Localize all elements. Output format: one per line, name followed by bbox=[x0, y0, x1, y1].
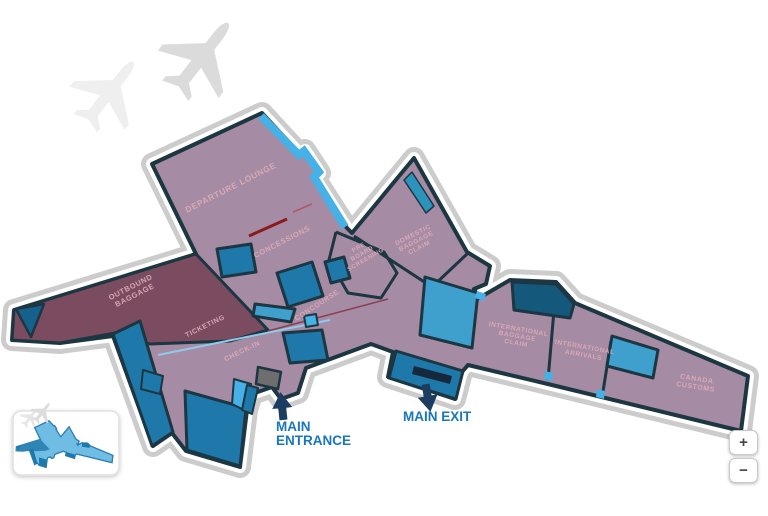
room bbox=[217, 244, 256, 277]
main-entrance-label: ENTRANCE bbox=[276, 433, 351, 448]
main-entrance-label: MAIN bbox=[276, 419, 311, 434]
main-exit-label: MAIN EXIT bbox=[403, 409, 472, 424]
room bbox=[325, 257, 350, 283]
zoom-out-button[interactable]: − bbox=[729, 458, 758, 483]
utility-room bbox=[256, 367, 281, 389]
room bbox=[283, 330, 328, 363]
minimap[interactable] bbox=[13, 397, 119, 475]
map-stage: DEPARTURE LOUNGE CONCESSIONS OUTBOUND BA… bbox=[0, 0, 768, 516]
zoom-in-button[interactable]: + bbox=[729, 430, 758, 455]
airplane-icon bbox=[145, 0, 259, 114]
airplane-icon bbox=[58, 40, 161, 145]
terminal-map-canvas[interactable]: DEPARTURE LOUNGE CONCESSIONS OUTBOUND BA… bbox=[0, 0, 768, 516]
